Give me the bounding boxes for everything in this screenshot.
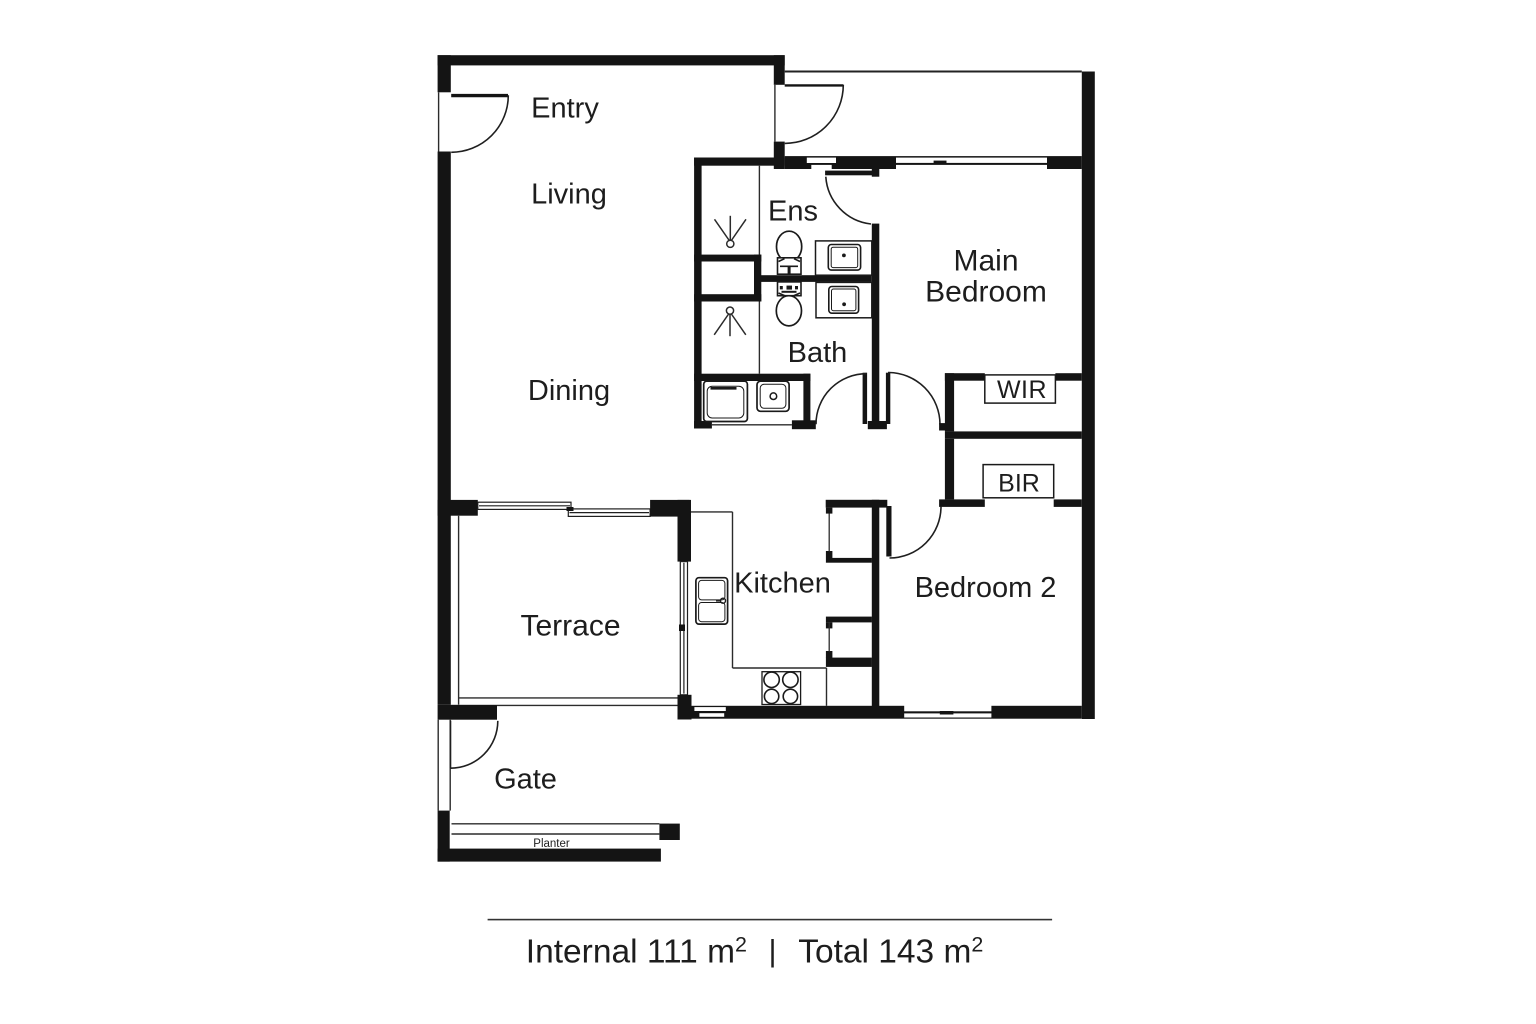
svg-text:Living: Living bbox=[531, 179, 607, 211]
svg-text:Ens: Ens bbox=[768, 196, 818, 228]
svg-text:Dining: Dining bbox=[528, 375, 610, 407]
svg-text:Gate: Gate bbox=[494, 764, 557, 796]
svg-text:Internal 111 m2: Internal 111 m2 bbox=[526, 933, 747, 971]
svg-text:Total 143 m2: Total 143 m2 bbox=[798, 933, 983, 971]
svg-text:Entry: Entry bbox=[531, 93, 599, 125]
svg-text:BIR: BIR bbox=[998, 470, 1040, 498]
svg-text:Bedroom: Bedroom bbox=[925, 275, 1047, 308]
svg-text:WIR: WIR bbox=[997, 376, 1047, 404]
svg-text:Main: Main bbox=[953, 244, 1018, 277]
svg-text:Terrace: Terrace bbox=[520, 610, 620, 643]
svg-text:|: | bbox=[769, 933, 777, 968]
svg-text:Bedroom 2: Bedroom 2 bbox=[915, 572, 1057, 604]
svg-text:Kitchen: Kitchen bbox=[734, 568, 831, 600]
svg-text:Planter: Planter bbox=[533, 838, 570, 850]
svg-text:Bath: Bath bbox=[788, 337, 848, 369]
